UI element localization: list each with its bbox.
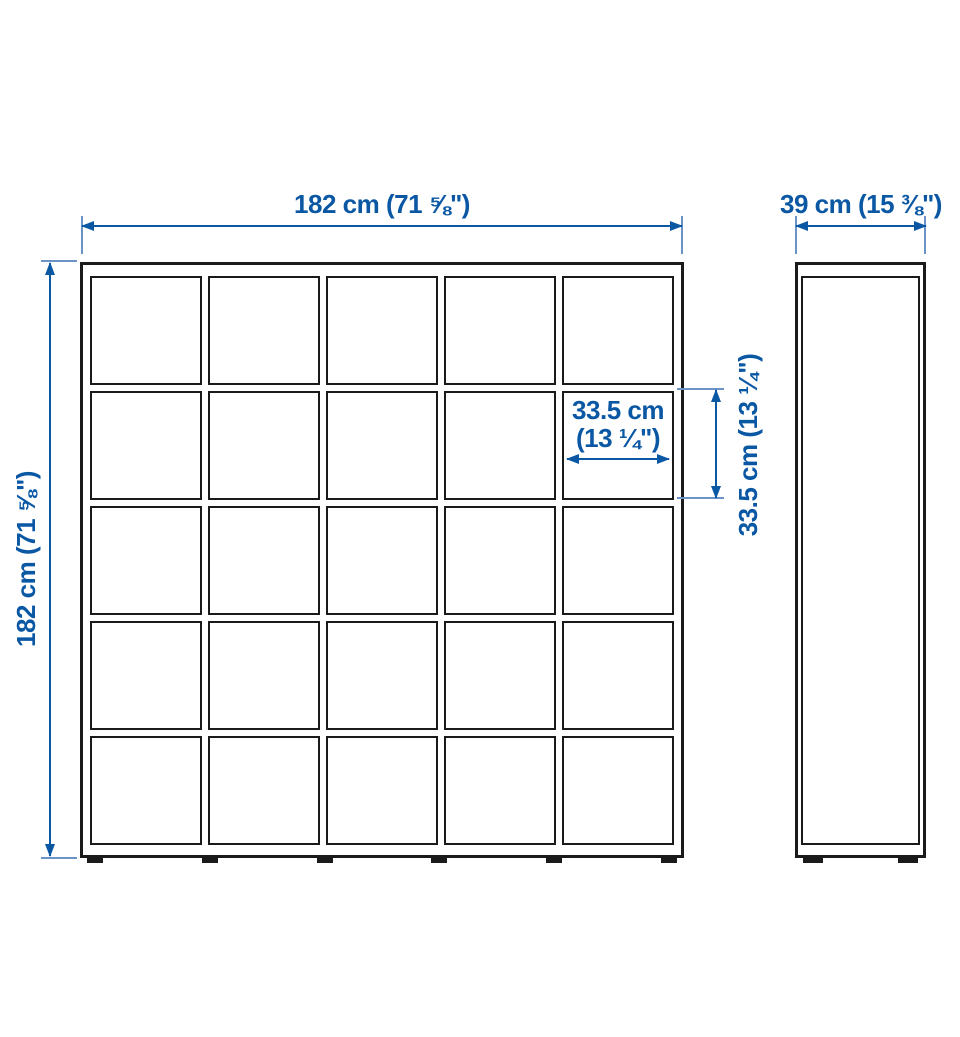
cell-width-dimension-label-line2: (13 ¼") [576,424,660,452]
depth-dimension-label: 39 cm (15 ⅜") [746,189,960,219]
arrowhead-up-icon [45,262,55,275]
foot [661,858,677,863]
front-width-dimension-label: 182 cm (71 ⅝") [80,189,684,219]
cube-cell [444,391,556,500]
arrowhead-left-icon [566,454,579,464]
arrowhead-right-icon [670,221,683,231]
cell-width-dimension-arrow [567,458,669,460]
foot [431,858,447,863]
foot [317,858,333,863]
cube-cell [90,276,202,385]
cube-cell [208,621,320,730]
side-view-unit [795,262,926,858]
foot [803,858,823,863]
depth-dimension-line [796,225,926,227]
cube-cell [444,506,556,615]
arrowhead-up-icon [711,389,721,402]
front-height-tick-bottom [41,857,77,859]
cube-cell [326,276,438,385]
cube-cell [326,391,438,500]
cube-cell [326,506,438,615]
front-height-dimension-line [49,263,51,856]
cube-cell [562,506,674,615]
shelf-grid [90,276,674,845]
cube-cell [90,391,202,500]
cube-cell [208,506,320,615]
cube-cell [444,276,556,385]
cell-height-dimension-label: 33.5 cm (13 ¼") [733,354,763,537]
arrowhead-left-icon [795,221,808,231]
cube-cell [208,736,320,845]
cube-cell [326,736,438,845]
arrowhead-down-icon [711,486,721,499]
arrowhead-left-icon [81,221,94,231]
side-feet [803,858,918,863]
foot [202,858,218,863]
foot [546,858,562,863]
cube-cell [444,621,556,730]
arrowhead-right-icon [914,221,927,231]
cube-cell [326,621,438,730]
cell-width-dimension: 33.5 cm (13 ¼") [562,392,674,498]
front-height-dimension-label: 182 cm (71 ⅝") [11,471,41,647]
cube-cell [90,621,202,730]
arrowhead-right-icon [657,454,670,464]
cube-cell [90,736,202,845]
arrowhead-down-icon [45,844,55,857]
furniture-dimension-diagram: 182 cm (71 ⅝") 182 cm (71 ⅝") 39 cm (15 … [0,0,960,1037]
side-panel-body [801,276,920,845]
front-feet [87,858,677,863]
cube-cell [562,276,674,385]
cube-cell [90,506,202,615]
foot [87,858,103,863]
front-width-dimension-line [82,225,682,227]
cell-width-dimension-label-line1: 33.5 cm [572,396,664,424]
cell-height-dimension-arrow [715,390,717,498]
cube-cell [208,391,320,500]
foot [898,858,918,863]
cube-cell [208,276,320,385]
cube-cell [562,621,674,730]
front-view-unit [80,262,684,858]
cube-cell [444,736,556,845]
cube-cell [562,736,674,845]
